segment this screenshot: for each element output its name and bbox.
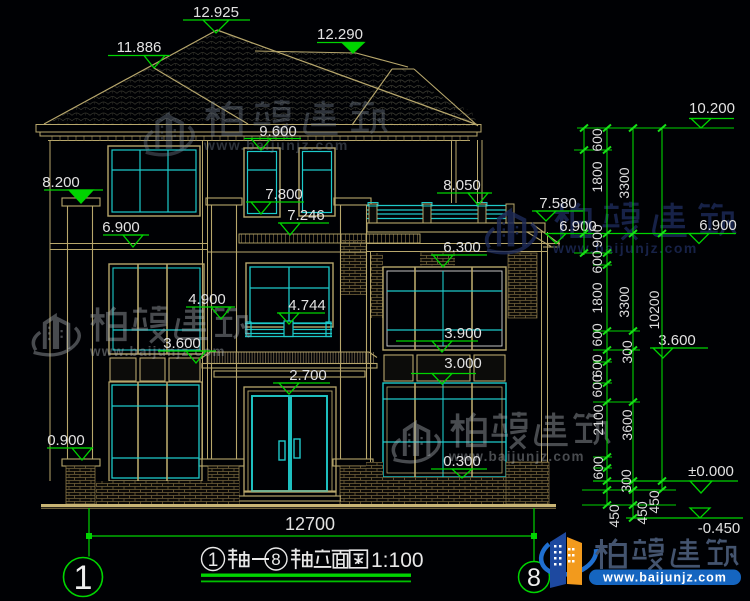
svg-text:11.886: 11.886: [117, 39, 162, 56]
svg-text:1:100: 1:100: [371, 549, 424, 572]
svg-text:450: 450: [606, 504, 622, 528]
svg-text:12.925: 12.925: [193, 4, 239, 21]
svg-text:3.000: 3.000: [444, 355, 482, 372]
svg-text:600: 600: [589, 354, 605, 378]
svg-text:12700: 12700: [285, 514, 335, 534]
svg-text:1800: 1800: [589, 282, 605, 313]
svg-text:6.900: 6.900: [102, 219, 140, 236]
svg-text:12.290: 12.290: [317, 26, 363, 43]
svg-text:±0.000: ±0.000: [688, 463, 734, 480]
svg-text:600: 600: [589, 128, 605, 152]
svg-text:3300: 3300: [616, 286, 632, 317]
svg-text:1800: 1800: [589, 161, 605, 192]
svg-text:7.800: 7.800: [265, 186, 303, 203]
svg-text:8.050: 8.050: [443, 177, 481, 194]
svg-text:3.600: 3.600: [658, 332, 696, 349]
svg-text:4.900: 4.900: [188, 291, 226, 308]
svg-text:3.900: 3.900: [444, 325, 482, 342]
svg-text:8: 8: [271, 550, 280, 569]
svg-text:450: 450: [646, 490, 662, 514]
svg-text:8: 8: [527, 564, 541, 592]
svg-text:4.744: 4.744: [288, 297, 326, 314]
svg-text:3600: 3600: [619, 409, 635, 440]
svg-text:3300: 3300: [616, 167, 632, 198]
svg-text:600: 600: [589, 323, 605, 347]
svg-text:2100: 2100: [590, 404, 606, 435]
svg-text:7.580: 7.580: [539, 195, 577, 212]
svg-text:300: 300: [618, 469, 634, 493]
svg-text:8.200: 8.200: [42, 174, 80, 191]
svg-text:1: 1: [74, 559, 93, 597]
svg-text:10200: 10200: [646, 290, 662, 329]
svg-text:0.900: 0.900: [47, 432, 85, 449]
svg-text:3.600: 3.600: [163, 335, 201, 352]
svg-text:6.300: 6.300: [443, 239, 481, 256]
svg-text:6.900: 6.900: [699, 217, 737, 234]
svg-text:600: 600: [589, 374, 605, 398]
svg-text:300: 300: [619, 340, 635, 364]
svg-text:7.246: 7.246: [287, 207, 325, 224]
svg-text:600: 600: [589, 250, 605, 274]
svg-text:www.baijunjz.com: www.baijunjz.com: [552, 240, 698, 256]
svg-text:2.700: 2.700: [289, 367, 327, 384]
svg-text:1: 1: [208, 550, 219, 571]
svg-text:900: 900: [589, 224, 605, 248]
svg-text:0.300: 0.300: [443, 453, 481, 470]
svg-text:www.baijunjz.com: www.baijunjz.com: [602, 571, 727, 585]
svg-text:9.600: 9.600: [259, 123, 297, 140]
svg-text:-0.450: -0.450: [698, 520, 741, 537]
svg-text:10.200: 10.200: [689, 100, 735, 117]
svg-text:600: 600: [590, 456, 606, 480]
